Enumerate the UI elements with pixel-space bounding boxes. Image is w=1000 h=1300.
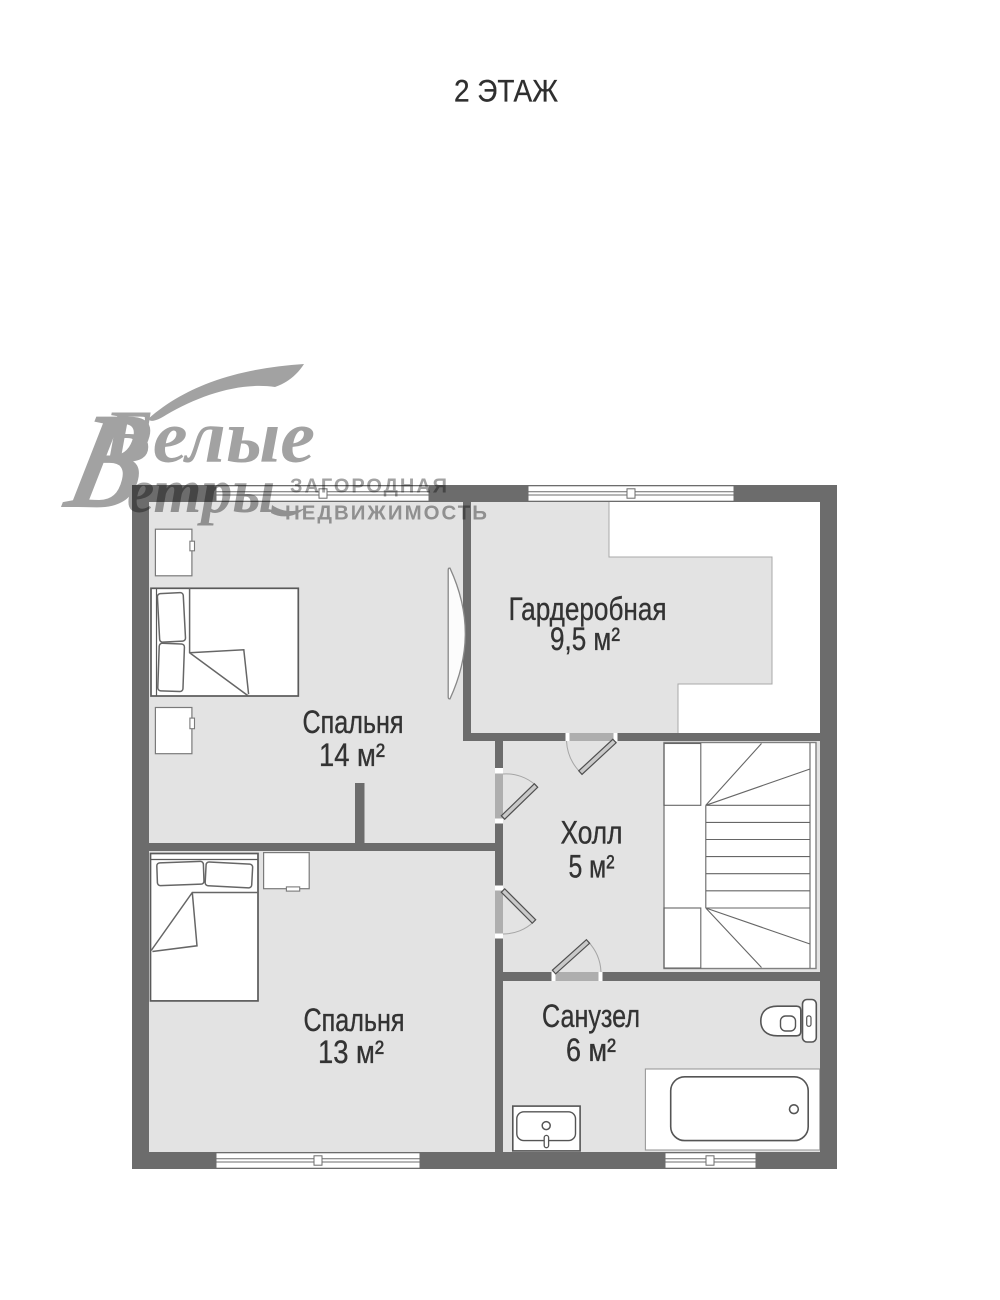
svg-text:6 м²: 6 м²	[566, 1032, 616, 1068]
svg-text:14 м²: 14 м²	[319, 737, 385, 773]
svg-text:Санузел: Санузел	[542, 998, 640, 1034]
svg-text:етры: етры	[127, 458, 275, 526]
svg-text:2 ЭТАЖ: 2 ЭТАЖ	[454, 73, 558, 109]
svg-text:Спальня: Спальня	[304, 1002, 405, 1038]
svg-text:НЕДВИЖИМОСТЬ: НЕДВИЖИМОСТЬ	[285, 502, 489, 525]
svg-text:Спальня: Спальня	[303, 704, 404, 740]
svg-text:ЗАГОРОДНАЯ: ЗАГОРОДНАЯ	[290, 475, 449, 498]
svg-text:9,5 м²: 9,5 м²	[550, 621, 620, 657]
svg-text:5 м²: 5 м²	[569, 849, 615, 885]
svg-text:13 м²: 13 м²	[318, 1034, 384, 1070]
svg-text:Холл: Холл	[561, 815, 623, 851]
